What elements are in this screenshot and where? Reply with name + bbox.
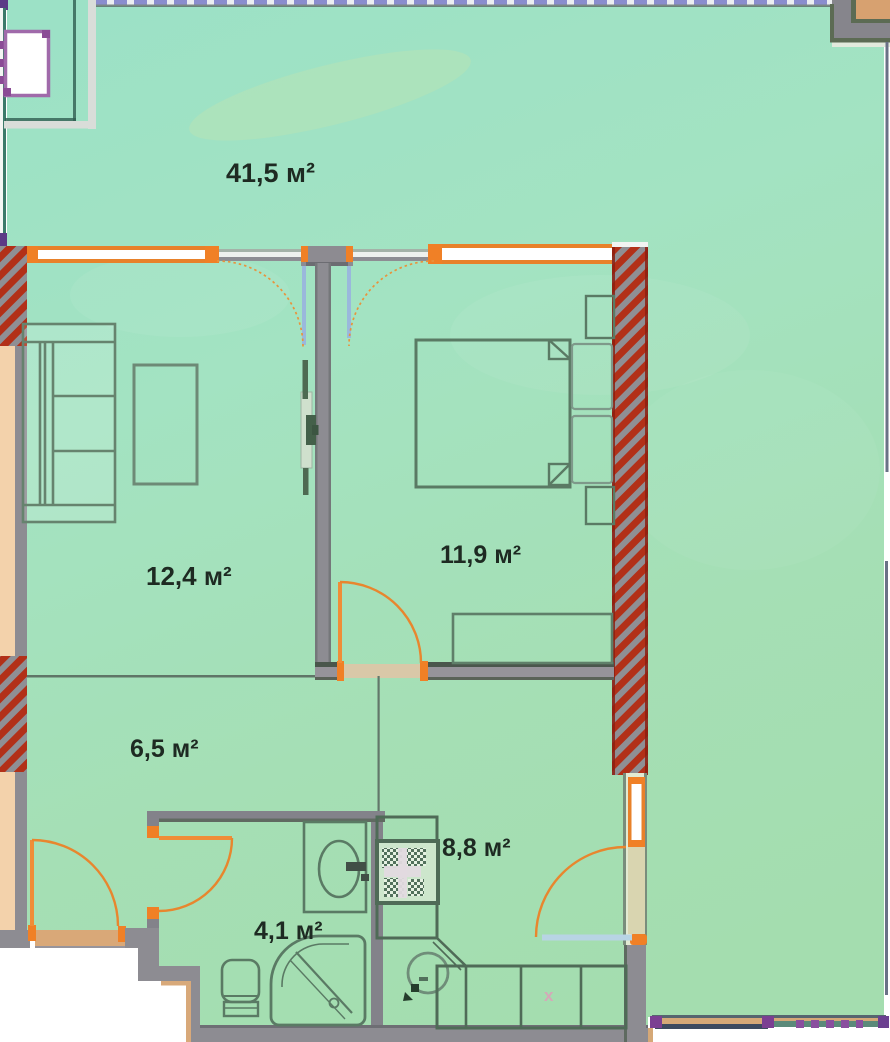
svg-text:6,5 м²: 6,5 м² xyxy=(130,735,199,763)
svg-text:12,4 м²: 12,4 м² xyxy=(146,561,232,591)
svg-text:41,5 м²: 41,5 м² xyxy=(226,158,315,188)
svg-text:x: x xyxy=(544,986,554,1005)
svg-text:11,9 м²: 11,9 м² xyxy=(440,541,521,569)
svg-text:4,1 м²: 4,1 м² xyxy=(254,917,323,945)
svg-text:8,8 м²: 8,8 м² xyxy=(442,834,511,862)
